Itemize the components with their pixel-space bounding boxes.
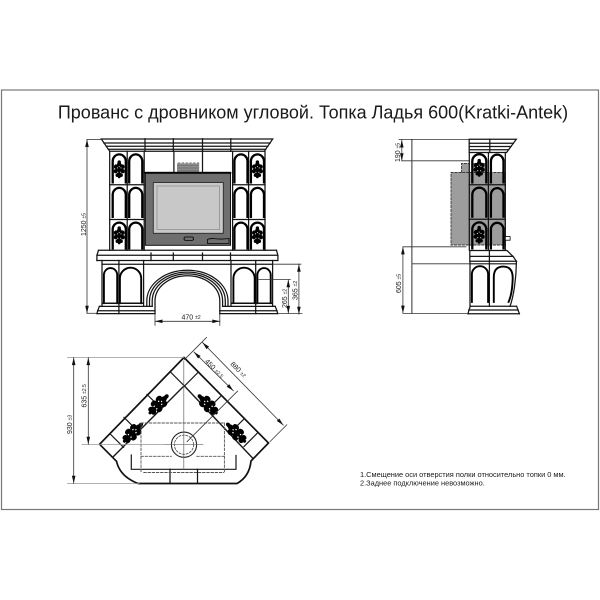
- svg-text:190 ±5: 190 ±5: [395, 143, 402, 162]
- svg-text:365 ±2: 365 ±2: [292, 281, 299, 300]
- svg-text:930 ±3: 930 ±3: [67, 415, 74, 434]
- svg-text:Прованс с дровником угловой. Т: Прованс с дровником угловой. Топка Ладья…: [58, 103, 568, 123]
- svg-text:635 ±2.5: 635 ±2.5: [82, 384, 89, 408]
- svg-text:265 ±2: 265 ±2: [282, 289, 289, 308]
- svg-text:2.Заднее подключение невозможн: 2.Заднее подключение невозможно.: [360, 479, 485, 488]
- svg-text:880 ±2: 880 ±2: [229, 361, 248, 380]
- svg-text:1250 ±5: 1250 ±5: [81, 213, 88, 236]
- svg-text:605 ±5: 605 ±5: [396, 274, 403, 293]
- svg-text:470 ±2: 470 ±2: [182, 315, 201, 322]
